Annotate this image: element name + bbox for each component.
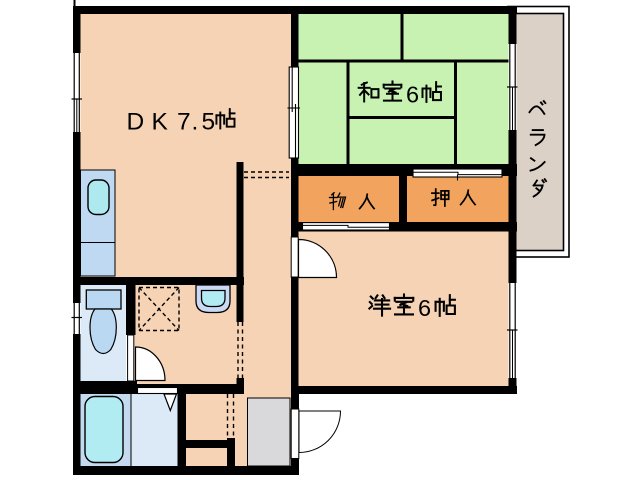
svg-text:6: 6 [406,82,419,108]
svg-text:7: 7 [177,109,191,136]
svg-text:D: D [127,109,145,136]
svg-text:6: 6 [418,295,431,321]
svg-text:K: K [152,109,169,136]
svg-text:5: 5 [202,109,216,136]
svg-text:.: . [192,109,199,136]
